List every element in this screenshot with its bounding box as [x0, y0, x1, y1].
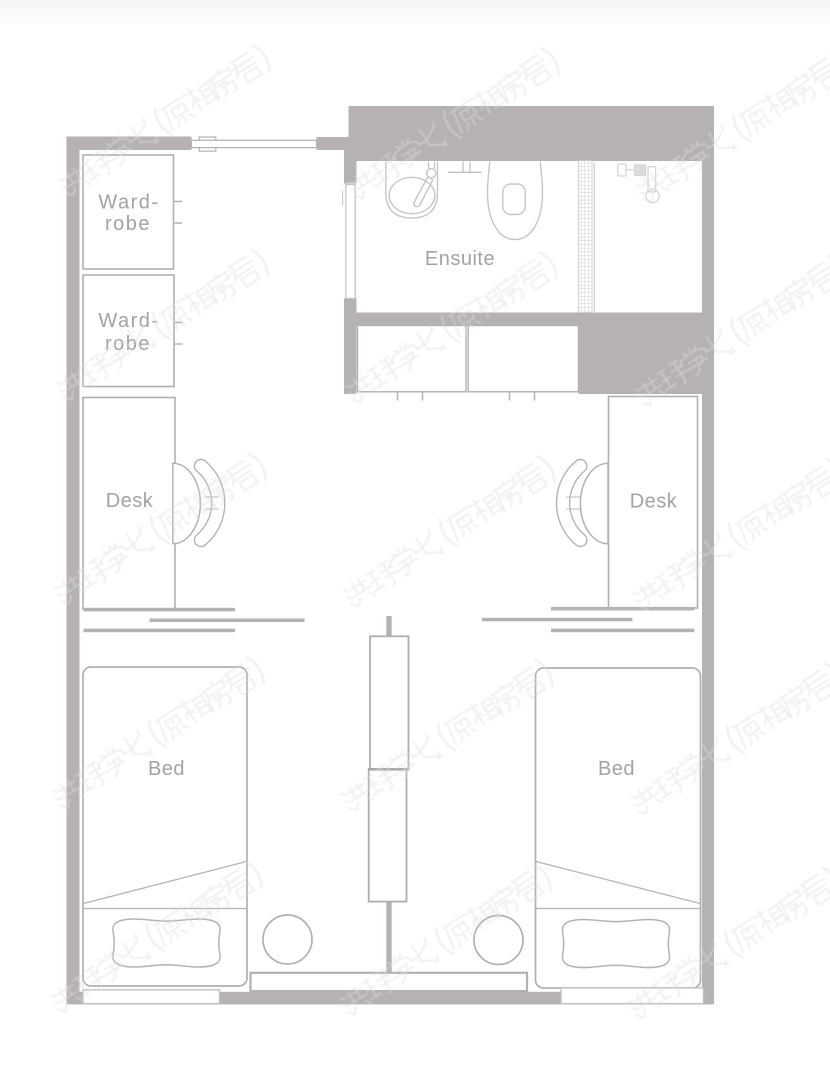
svg-text:robe: robe: [105, 213, 151, 235]
svg-text:Desk: Desk: [106, 490, 154, 512]
svg-text:Desk: Desk: [630, 491, 678, 513]
svg-text:Bed: Bed: [598, 758, 635, 780]
svg-text:Ward-: Ward-: [98, 192, 159, 214]
svg-text:Bed: Bed: [148, 758, 185, 780]
svg-text:Ensuite: Ensuite: [425, 248, 495, 270]
svg-text:Ward-: Ward-: [98, 310, 159, 332]
